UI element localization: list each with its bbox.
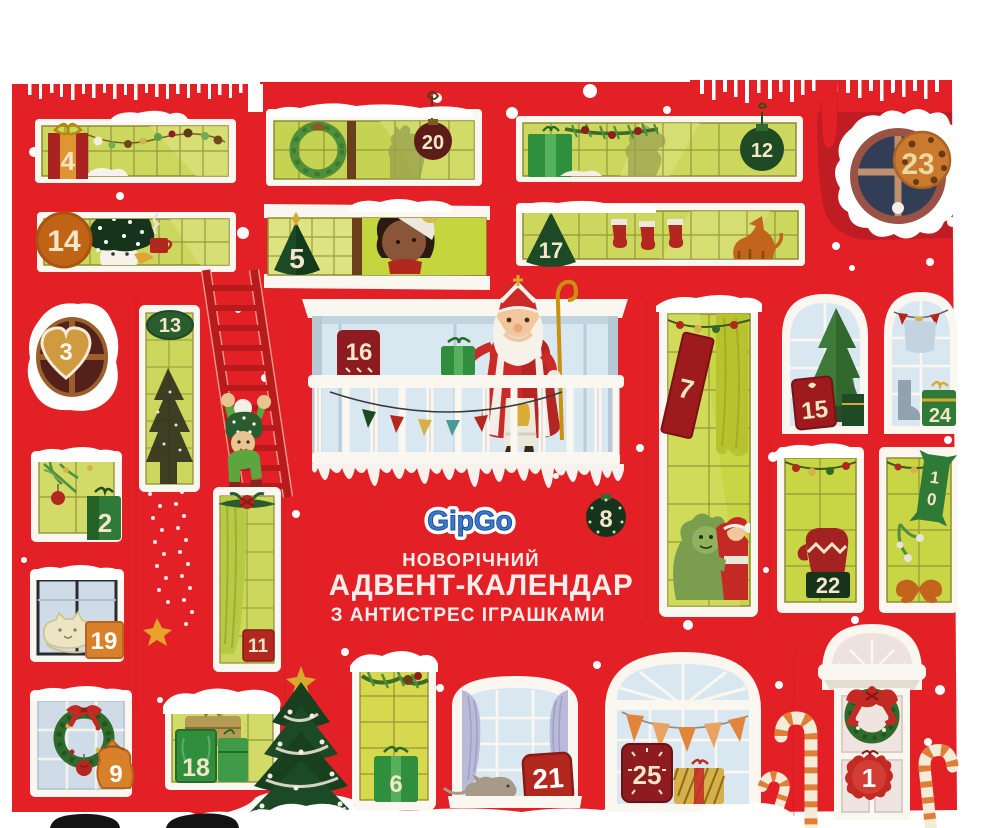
svg-text:GipGo: GipGo (427, 505, 513, 536)
svg-text:17: 17 (539, 238, 563, 263)
svg-text:19: 19 (91, 628, 118, 655)
svg-text:15: 15 (800, 396, 829, 426)
svg-text:20: 20 (422, 132, 444, 154)
svg-text:2: 2 (98, 508, 112, 538)
svg-text:13: 13 (159, 315, 181, 337)
svg-text:25: 25 (633, 760, 662, 790)
svg-text:НОВОРІЧНИЙ: НОВОРІЧНИЙ (402, 549, 539, 570)
svg-text:6: 6 (389, 771, 402, 798)
svg-text:24: 24 (929, 405, 952, 427)
svg-text:18: 18 (182, 754, 210, 782)
svg-text:8: 8 (599, 506, 612, 533)
svg-text:9: 9 (109, 761, 122, 788)
svg-text:23: 23 (901, 148, 934, 181)
svg-text:11: 11 (248, 636, 269, 657)
svg-text:12: 12 (751, 140, 773, 162)
svg-text:1: 1 (862, 763, 876, 793)
svg-text:5: 5 (289, 243, 305, 274)
svg-text:21: 21 (531, 762, 564, 795)
svg-text:4: 4 (61, 146, 76, 176)
svg-text:3: 3 (59, 339, 72, 366)
svg-text:АДВЕНТ-КАЛЕНДАР: АДВЕНТ-КАЛЕНДАР (329, 569, 633, 602)
svg-text:З АНТИСТРЕС ІГРАШКАМИ: З АНТИСТРЕС ІГРАШКАМИ (331, 605, 606, 626)
svg-text:22: 22 (816, 573, 840, 598)
svg-text:14: 14 (47, 225, 81, 258)
svg-text:16: 16 (346, 339, 373, 366)
